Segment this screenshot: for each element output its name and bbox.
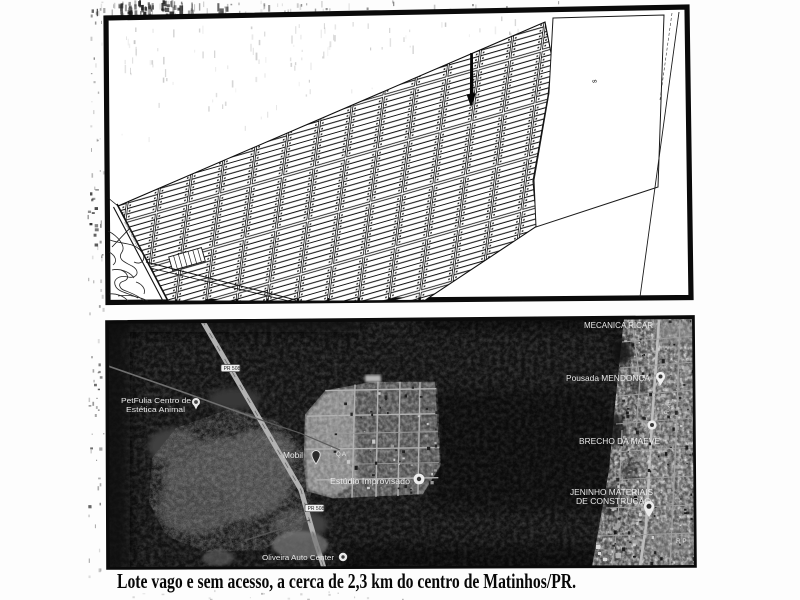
svg-text:Estúdio Improvisado: Estúdio Improvisado xyxy=(330,477,410,486)
svg-text:Oliveira Auto Center: Oliveira Auto Center xyxy=(262,553,335,562)
svg-text:JENINHO MATERIAIS: JENINHO MATERIAIS xyxy=(570,488,654,497)
svg-text:PR 508: PR 508 xyxy=(224,366,241,372)
svg-text:PR 508: PR 508 xyxy=(308,506,325,512)
svg-text:PetFulia Centro de: PetFulia Centro de xyxy=(121,396,191,405)
svg-text:DE CONSTRUÇÃO: DE CONSTRUÇÃO xyxy=(576,496,651,506)
svg-text:Mobil: Mobil xyxy=(283,451,303,460)
svg-text:R P: R P xyxy=(676,538,687,545)
svg-text:s: s xyxy=(592,79,599,83)
svg-text:Lote vago e sem acesso, a cerc: Lote vago e sem acesso, a cerca de 2,3 k… xyxy=(117,569,576,593)
svg-text:MECANICA RICAR: MECANICA RICAR xyxy=(584,321,653,330)
svg-text:Estética Animal: Estética Animal xyxy=(126,405,185,414)
svg-text:Q A: Q A xyxy=(336,452,346,458)
svg-text:BRECHO DA MAEVE: BRECHO DA MAEVE xyxy=(579,437,661,446)
svg-text:Pousada MENDONÇA: Pousada MENDONÇA xyxy=(566,374,651,383)
